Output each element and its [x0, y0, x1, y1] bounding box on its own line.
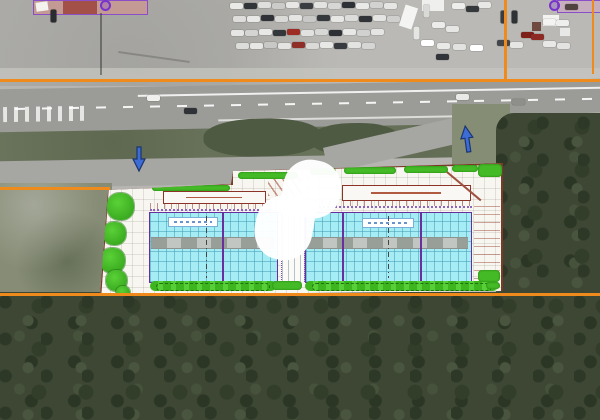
hedge-bush	[344, 167, 396, 174]
rooftop-unit	[35, 1, 48, 12]
fire-lane-loop-west	[156, 283, 270, 291]
shed	[543, 15, 559, 26]
road-edge-line	[138, 87, 600, 97]
building-label-west	[168, 217, 218, 227]
cadastre-line-west	[0, 187, 110, 190]
grass-west	[0, 183, 112, 295]
hedge-bush	[478, 164, 502, 177]
plan-boundary-east	[501, 163, 503, 291]
utility-marker-dot	[549, 0, 560, 11]
white-roof-structure	[422, 0, 444, 11]
section-line	[388, 216, 389, 278]
cadastre-line-south	[0, 293, 600, 296]
road-center-dashes	[0, 98, 600, 111]
building-roof-section	[63, 1, 97, 14]
hedge-bush	[478, 270, 500, 282]
existing-building-northwest	[33, 0, 148, 15]
unit-divider	[342, 213, 344, 281]
tree-symbol	[103, 222, 126, 245]
cadastre-line-vertical	[504, 0, 507, 81]
shed	[560, 28, 570, 36]
hedge-bush	[404, 166, 448, 173]
forest-south	[0, 292, 600, 420]
road-hatch-marking	[3, 106, 87, 122]
shed	[532, 22, 541, 31]
canopy-label-line	[371, 192, 441, 194]
utility-marker-dot	[100, 0, 111, 11]
tree-symbol	[107, 193, 134, 220]
hedge-bush	[272, 281, 302, 290]
aerial-site-plan-view	[0, 0, 600, 420]
cadastre-line-north	[0, 79, 600, 82]
unit-divider	[222, 213, 224, 281]
entrance-arrow-down-icon	[131, 146, 147, 173]
section-line	[206, 216, 207, 278]
fire-lane-loop-east	[312, 283, 492, 291]
hedge-bush	[486, 282, 500, 289]
unit-divider	[420, 213, 422, 281]
canopy-label-line	[186, 197, 242, 199]
shrub-cluster	[203, 118, 322, 158]
cadastre-line-vertical-east	[592, 0, 594, 74]
parking-canopy-east	[342, 185, 471, 201]
forest-east	[496, 113, 600, 313]
hedge-bush	[452, 165, 478, 172]
pole-shadow	[100, 13, 102, 75]
